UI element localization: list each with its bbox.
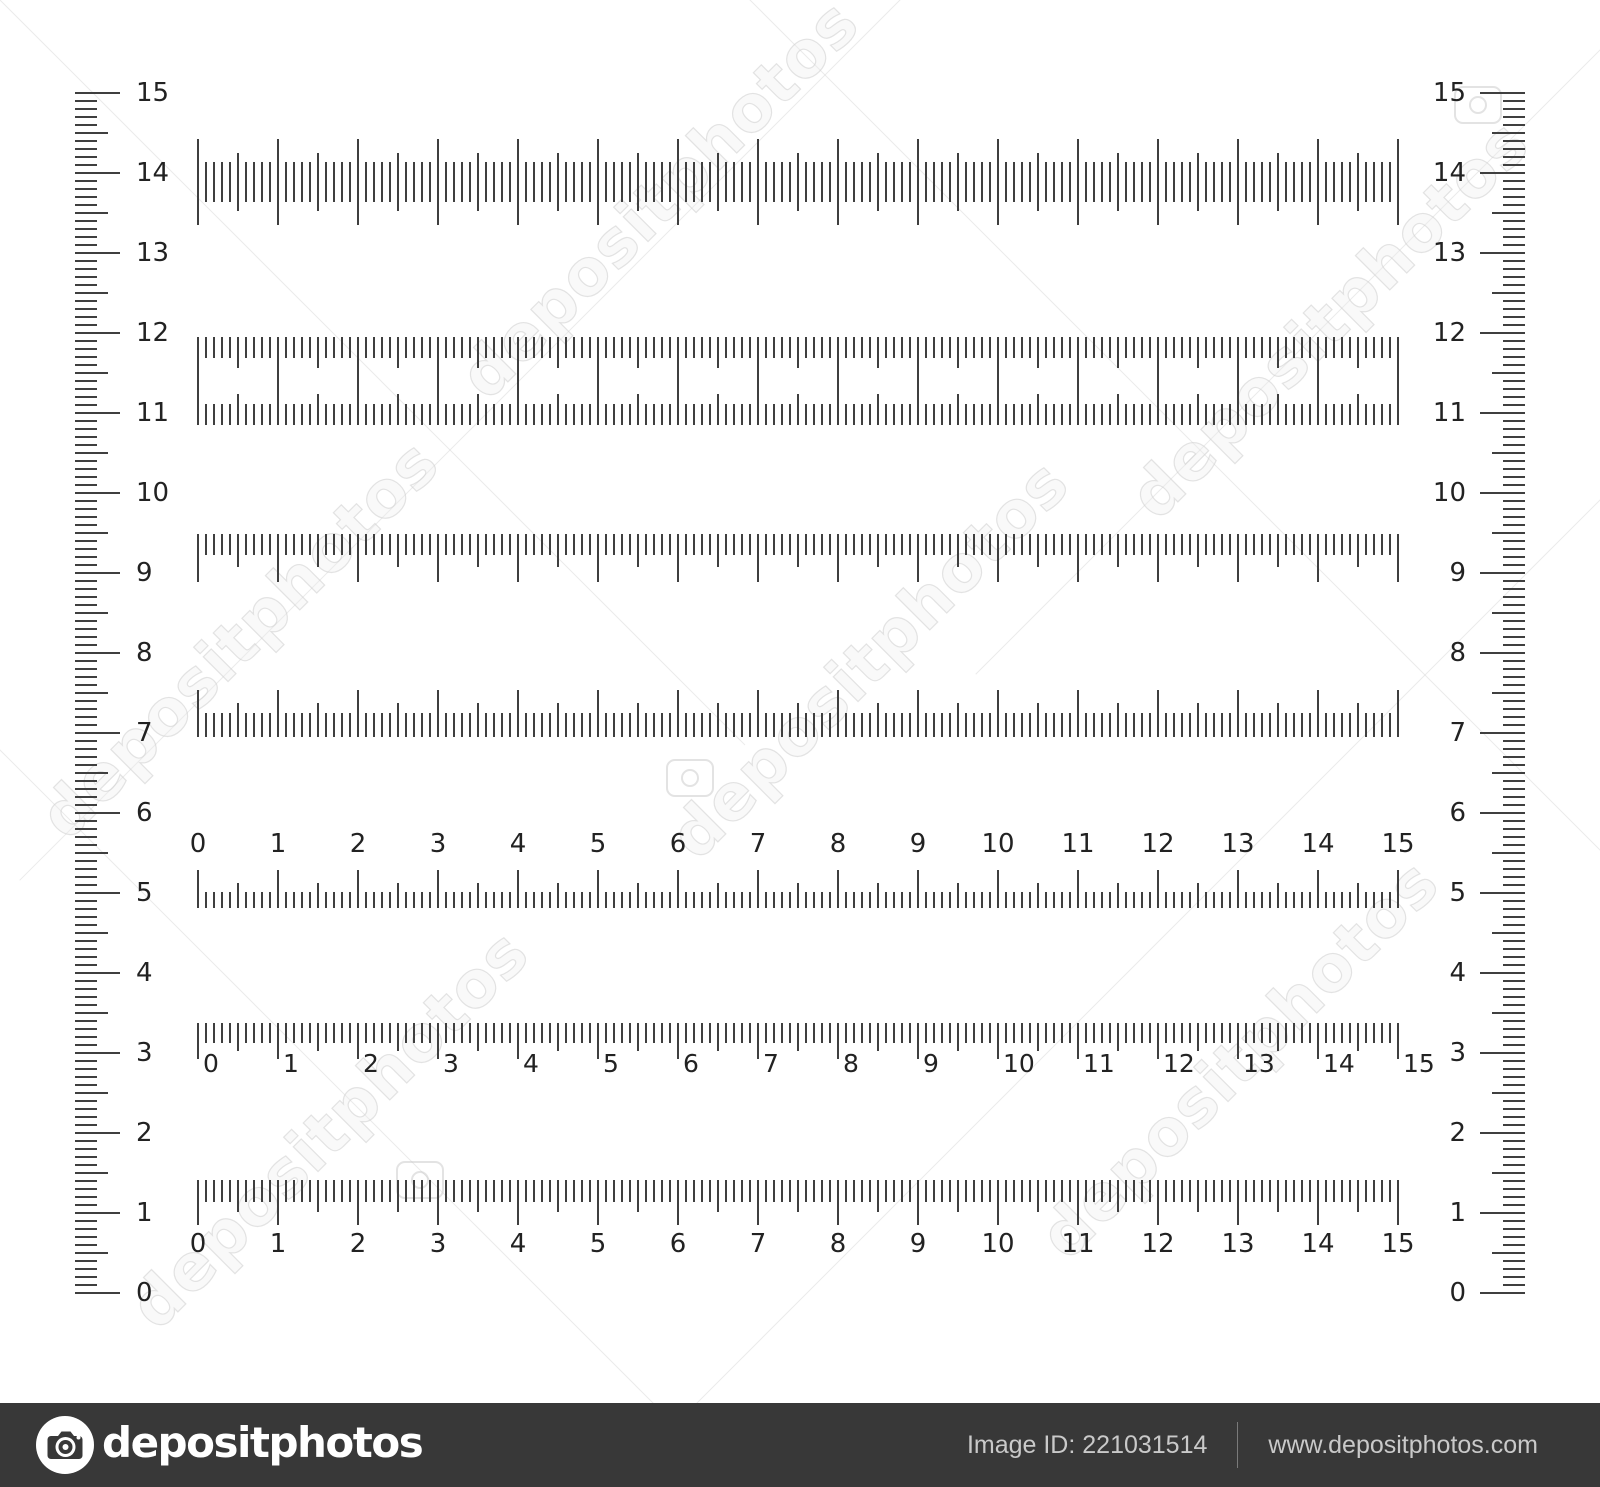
tick <box>381 713 383 737</box>
tick <box>301 713 303 737</box>
tick <box>1492 1172 1525 1174</box>
tick <box>789 1023 791 1043</box>
tick <box>1492 532 1525 534</box>
tick <box>75 772 108 774</box>
tick <box>75 372 108 374</box>
tick <box>1503 364 1525 366</box>
tick <box>381 534 383 555</box>
tick <box>749 892 751 908</box>
tick <box>773 713 775 737</box>
tick <box>637 153 639 211</box>
tick <box>301 534 303 555</box>
tick <box>677 337 679 425</box>
tick <box>75 1220 97 1222</box>
tick <box>493 1180 495 1202</box>
horizontal-ruler-7-numbers-below-centered-label: 3 <box>414 1230 462 1259</box>
tick <box>525 337 527 358</box>
tick <box>245 713 247 737</box>
tick <box>229 337 231 358</box>
tick <box>941 713 943 737</box>
tick <box>221 1180 223 1202</box>
tick <box>1221 1180 1223 1202</box>
tick <box>1221 162 1223 202</box>
tick <box>1492 772 1525 774</box>
vertical-ruler-left-label: 5 <box>136 878 182 908</box>
tick <box>1157 690 1159 737</box>
horizontal-ruler-7-numbers-below-centered-label: 12 <box>1134 1230 1182 1259</box>
tick <box>213 892 215 908</box>
tick <box>75 564 97 566</box>
tick <box>893 534 895 555</box>
tick <box>1245 162 1247 202</box>
tick <box>605 162 607 202</box>
tick <box>1253 713 1255 737</box>
tick <box>349 404 351 425</box>
tick <box>677 139 679 225</box>
tick <box>1229 337 1231 358</box>
tick <box>75 1052 120 1054</box>
tick <box>1077 1023 1079 1059</box>
tick <box>605 534 607 555</box>
tick <box>597 1180 599 1225</box>
horizontal-ruler-6-numbers-below-offset-label: 0 <box>203 1050 219 1078</box>
tick <box>1325 1180 1327 1202</box>
tick <box>197 139 199 225</box>
tick <box>205 337 207 358</box>
tick <box>597 870 599 908</box>
tick <box>75 452 108 454</box>
tick <box>213 534 215 555</box>
tick <box>1381 337 1383 358</box>
tick <box>75 100 97 102</box>
tick <box>533 337 535 358</box>
tick <box>613 534 615 555</box>
tick <box>629 337 631 358</box>
tick <box>453 534 455 555</box>
tick <box>709 337 711 358</box>
tick <box>1349 713 1351 737</box>
tick <box>1503 916 1525 918</box>
tick <box>1503 956 1525 958</box>
tick <box>75 508 97 510</box>
tick <box>1109 892 1111 908</box>
tick <box>1325 162 1327 202</box>
tick <box>1069 337 1071 358</box>
tick <box>885 1180 887 1202</box>
watermark-diagonal-line <box>19 0 1080 881</box>
tick <box>1221 534 1223 555</box>
tick <box>1165 1180 1167 1202</box>
tick <box>1061 1023 1063 1043</box>
tick <box>1397 1180 1399 1225</box>
tick <box>533 404 535 425</box>
tick <box>1503 708 1525 710</box>
tick <box>405 337 407 358</box>
tick <box>1237 139 1239 225</box>
tick <box>813 1023 815 1043</box>
tick <box>461 337 463 358</box>
tick <box>1021 404 1023 425</box>
tick <box>469 1023 471 1043</box>
tick <box>261 404 263 425</box>
tick <box>501 713 503 737</box>
tick <box>277 534 279 582</box>
tick <box>629 404 631 425</box>
tick <box>325 162 327 202</box>
tick <box>405 1023 407 1043</box>
tick <box>1503 404 1525 406</box>
tick <box>373 713 375 737</box>
tick <box>885 892 887 908</box>
tick <box>1503 644 1525 646</box>
tick <box>75 1268 97 1270</box>
tick <box>725 534 727 555</box>
vertical-ruler-right-label: 7 <box>1420 718 1466 748</box>
tick <box>981 892 983 908</box>
tick <box>75 852 108 854</box>
horizontal-ruler-6-numbers-below-offset-label: 9 <box>923 1050 939 1078</box>
tick <box>1309 337 1311 358</box>
tick <box>581 713 583 737</box>
vertical-ruler-left-label: 9 <box>136 558 182 588</box>
tick <box>549 162 551 202</box>
tick <box>1503 468 1525 470</box>
tick <box>1480 92 1525 94</box>
tick <box>485 162 487 202</box>
tick <box>725 892 727 908</box>
tick <box>1492 292 1525 294</box>
tick <box>1365 534 1367 555</box>
tick <box>501 337 503 358</box>
tick <box>75 92 120 94</box>
tick <box>573 404 575 425</box>
tick <box>1093 1180 1095 1202</box>
tick <box>333 892 335 908</box>
tick <box>75 1068 97 1070</box>
tick <box>1503 724 1525 726</box>
tick <box>1503 1140 1525 1142</box>
tick <box>1301 1180 1303 1202</box>
tick <box>237 1180 239 1212</box>
horizontal-ruler-5-numbers-above-label: 9 <box>894 830 942 859</box>
tick <box>565 1180 567 1202</box>
horizontal-ruler-5-numbers-above-label: 1 <box>254 830 302 859</box>
tick <box>75 636 97 638</box>
tick <box>245 404 247 425</box>
tick <box>75 756 97 758</box>
tick <box>1373 1180 1375 1202</box>
tick <box>1503 748 1525 750</box>
tick <box>909 337 911 358</box>
tick <box>245 1023 247 1043</box>
tick <box>389 162 391 202</box>
tick <box>1503 108 1525 110</box>
vertical-ruler-left-label: 2 <box>136 1118 182 1148</box>
tick <box>837 1023 839 1059</box>
tick <box>1061 337 1063 358</box>
tick <box>75 124 97 126</box>
vertical-ruler-left-label: 4 <box>136 958 182 988</box>
tick <box>1125 1023 1127 1043</box>
tick <box>1503 900 1525 902</box>
tick <box>1173 713 1175 737</box>
tick <box>1149 1023 1151 1043</box>
tick <box>75 1292 120 1294</box>
tick <box>1357 394 1359 425</box>
tick <box>941 892 943 908</box>
tick <box>75 188 97 190</box>
tick <box>1503 460 1525 462</box>
tick <box>525 162 527 202</box>
tick <box>1021 337 1023 358</box>
tick <box>1189 1180 1191 1202</box>
tick <box>389 1180 391 1202</box>
tick <box>1149 713 1151 737</box>
tick <box>797 703 799 737</box>
tick <box>557 153 559 211</box>
tick <box>293 337 295 358</box>
tick <box>397 394 399 425</box>
tick <box>75 260 97 262</box>
tick <box>1197 394 1199 425</box>
tick <box>75 1204 97 1206</box>
tick <box>621 162 623 202</box>
horizontal-ruler-6-numbers-below-offset-label: 1 <box>283 1050 299 1078</box>
tick <box>1077 870 1079 908</box>
tick <box>1503 796 1525 798</box>
tick <box>925 162 927 202</box>
tick <box>469 404 471 425</box>
tick <box>75 804 97 806</box>
tick <box>637 1023 639 1051</box>
tick <box>341 713 343 737</box>
tick <box>75 140 97 142</box>
tick <box>901 1023 903 1043</box>
tick <box>901 337 903 358</box>
tick <box>741 404 743 425</box>
tick <box>781 162 783 202</box>
tick <box>1181 337 1183 358</box>
tick <box>829 1023 831 1043</box>
tick <box>1045 534 1047 555</box>
tick <box>925 534 927 555</box>
tick <box>75 308 97 310</box>
tick <box>75 1076 97 1078</box>
tick <box>509 1023 511 1043</box>
tick <box>197 534 199 582</box>
tick <box>1005 1023 1007 1043</box>
tick <box>301 404 303 425</box>
tick <box>549 1023 551 1043</box>
tick <box>1149 337 1151 358</box>
tick <box>1503 420 1525 422</box>
tick <box>1069 534 1071 555</box>
tick <box>725 713 727 737</box>
tick <box>693 1180 695 1202</box>
tick <box>725 1023 727 1043</box>
tick <box>1077 534 1079 582</box>
tick <box>541 337 543 358</box>
tick <box>1503 1028 1525 1030</box>
tick <box>1109 162 1111 202</box>
tick <box>1125 404 1127 425</box>
tick <box>75 884 97 886</box>
tick <box>453 1180 455 1202</box>
tick <box>1005 1180 1007 1202</box>
tick <box>75 628 97 630</box>
tick <box>469 1180 471 1202</box>
tick <box>1101 162 1103 202</box>
tick <box>1503 196 1525 198</box>
tick <box>989 534 991 555</box>
tick <box>765 892 767 908</box>
tick <box>1503 564 1525 566</box>
tick <box>917 337 919 425</box>
tick <box>1165 534 1167 555</box>
tick <box>1373 534 1375 555</box>
tick <box>645 892 647 908</box>
horizontal-ruler-6-numbers-below-offset-label: 15 <box>1403 1050 1435 1078</box>
tick <box>1141 337 1143 358</box>
tick <box>1503 1260 1525 1262</box>
tick <box>845 713 847 737</box>
tick <box>1277 703 1279 737</box>
tick <box>749 162 751 202</box>
tick <box>949 1180 951 1202</box>
tick <box>75 204 97 206</box>
watermark-diagonal-line <box>463 363 1600 1487</box>
horizontal-ruler-5-numbers-above-label: 11 <box>1054 830 1102 859</box>
tick <box>525 534 527 555</box>
tick <box>957 337 959 368</box>
vertical-ruler-right-label: 10 <box>1420 478 1466 508</box>
tick <box>581 1180 583 1202</box>
tick <box>75 460 97 462</box>
tick <box>533 1180 535 1202</box>
tick <box>1317 139 1319 225</box>
vertical-ruler-left-label: 1 <box>136 1198 182 1228</box>
tick <box>1181 534 1183 555</box>
tick <box>525 1180 527 1202</box>
tick <box>75 1108 97 1110</box>
vertical-ruler-right-label: 9 <box>1420 558 1466 588</box>
tick <box>989 713 991 737</box>
tick <box>909 534 911 555</box>
tick <box>75 1092 108 1094</box>
tick <box>75 1156 97 1158</box>
tick <box>637 534 639 567</box>
tick <box>75 644 97 646</box>
horizontal-ruler-7-numbers-below-centered-label: 1 <box>254 1230 302 1259</box>
tick <box>621 404 623 425</box>
tick <box>477 1023 479 1051</box>
tick <box>789 1180 791 1202</box>
tick <box>613 404 615 425</box>
tick <box>1229 404 1231 425</box>
tick <box>1109 404 1111 425</box>
tick <box>621 1180 623 1202</box>
tick <box>1197 703 1199 737</box>
tick <box>1061 404 1063 425</box>
tick <box>261 1023 263 1043</box>
tick <box>805 404 807 425</box>
tick <box>75 700 97 702</box>
tick <box>1503 220 1525 222</box>
tick <box>821 534 823 555</box>
tick <box>1005 534 1007 555</box>
tick <box>405 1180 407 1202</box>
tick <box>301 337 303 358</box>
tick <box>629 534 631 555</box>
tick <box>517 1023 519 1059</box>
tick <box>365 534 367 555</box>
tick <box>1357 153 1359 211</box>
tick <box>1349 404 1351 425</box>
tick <box>381 1180 383 1202</box>
horizontal-ruler-6-numbers-below-offset-label: 12 <box>1163 1050 1195 1078</box>
tick <box>1085 1180 1087 1202</box>
tick <box>749 713 751 737</box>
tick <box>1349 892 1351 908</box>
tick <box>75 604 97 606</box>
tick <box>885 1023 887 1043</box>
tick <box>1480 492 1525 494</box>
horizontal-ruler-6-numbers-below-offset-label: 14 <box>1323 1050 1355 1078</box>
tick <box>781 534 783 555</box>
tick <box>621 534 623 555</box>
tick <box>461 404 463 425</box>
tick <box>1365 162 1367 202</box>
tick <box>917 1023 919 1059</box>
tick <box>1373 713 1375 737</box>
tick <box>1157 1180 1159 1225</box>
tick <box>75 292 108 294</box>
horizontal-ruler-6-numbers-below-offset-label: 6 <box>683 1050 699 1078</box>
tick <box>581 337 583 358</box>
tick <box>581 534 583 555</box>
tick <box>1480 332 1525 334</box>
tick <box>333 1180 335 1202</box>
tick <box>1389 404 1391 425</box>
tick <box>1503 620 1525 622</box>
tick <box>765 162 767 202</box>
tick <box>1165 404 1167 425</box>
tick <box>1503 908 1525 910</box>
tick <box>309 1023 311 1043</box>
tick <box>213 1180 215 1202</box>
tick <box>1213 404 1215 425</box>
tick <box>629 1023 631 1043</box>
tick <box>1381 892 1383 908</box>
tick <box>285 337 287 358</box>
tick <box>1013 162 1015 202</box>
tick <box>1205 1180 1207 1202</box>
tick <box>1093 404 1095 425</box>
tick <box>557 1180 559 1212</box>
tick <box>75 148 97 150</box>
tick <box>349 1180 351 1202</box>
tick <box>429 1180 431 1202</box>
tick <box>1213 162 1215 202</box>
tick <box>75 412 120 414</box>
tick <box>605 713 607 737</box>
tick <box>677 1180 679 1225</box>
tick <box>333 534 335 555</box>
vertical-ruler-right-label: 5 <box>1420 878 1466 908</box>
tick <box>765 337 767 358</box>
tick <box>1503 1124 1525 1126</box>
tick <box>1021 892 1023 908</box>
